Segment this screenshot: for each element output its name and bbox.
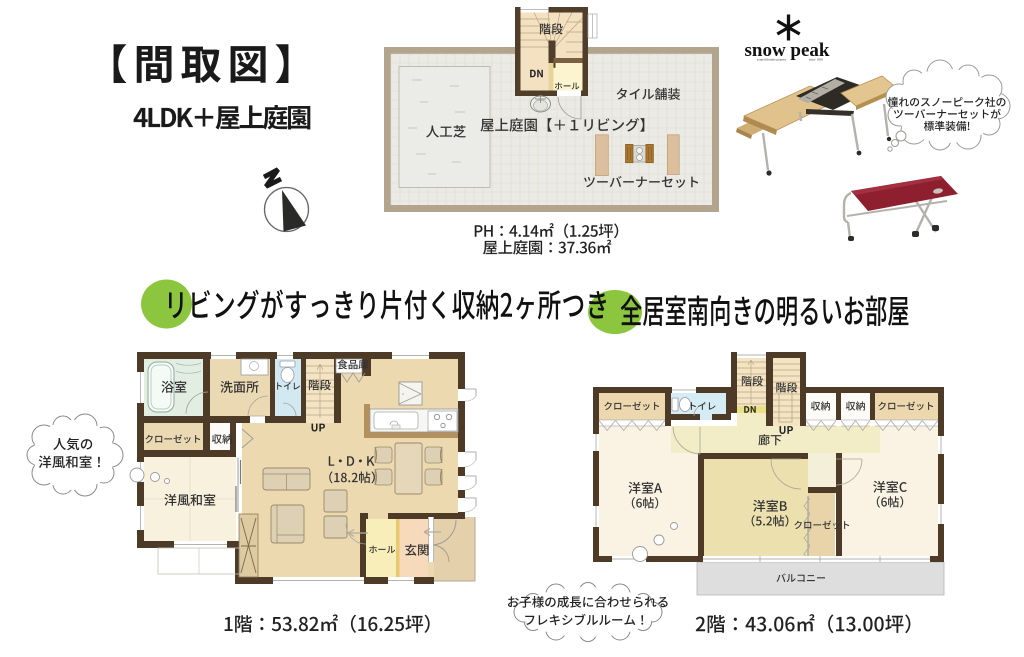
- svg-text:sound lifestyle pioneer: sound lifestyle pioneer: [757, 58, 787, 62]
- svg-text:since 1958: since 1958: [809, 58, 823, 62]
